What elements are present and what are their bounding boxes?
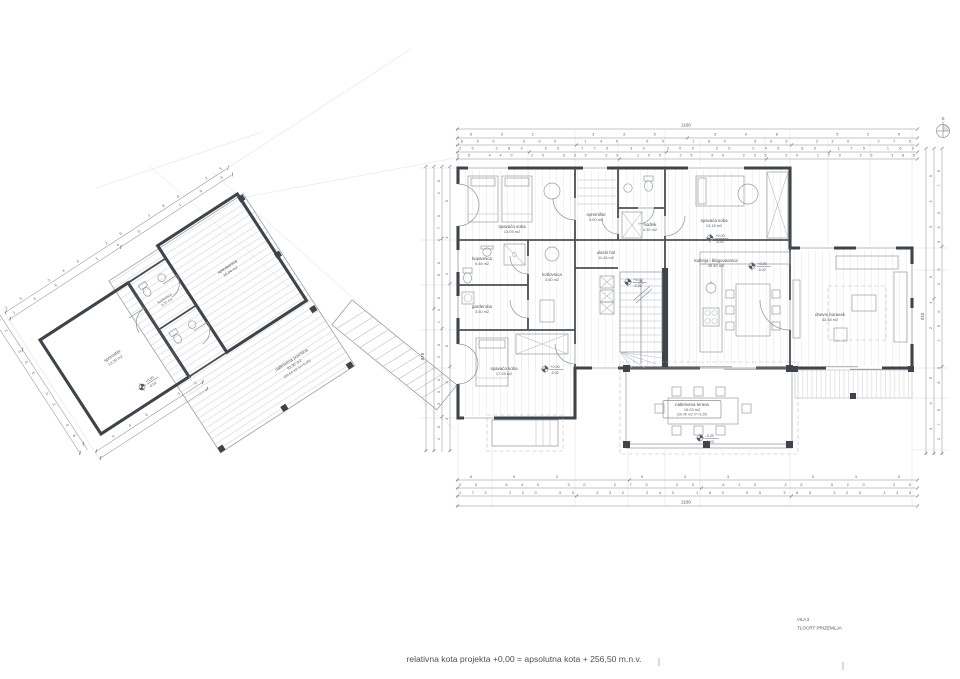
svg-text:-0,02: -0,02 bbox=[634, 284, 642, 288]
svg-text:-0,02: -0,02 bbox=[716, 240, 724, 244]
drawing-sheet: 155 140 195 25 240 20 180 25 90 20 330 2… bbox=[0, 0, 960, 679]
room-label: spremište13.20 m2 bbox=[103, 348, 125, 367]
svg-text:ulazni hol11.46 m2: ulazni hol11.46 m2 bbox=[597, 250, 616, 260]
svg-text:-0,20: -0,20 bbox=[706, 434, 714, 438]
dim-row: 650 300 140 60 160 345 230 275 bbox=[461, 140, 911, 144]
svg-text:-0,02: -0,02 bbox=[758, 268, 766, 272]
footer: relativna kota projekta +0,00 = apsolutn… bbox=[406, 654, 843, 670]
north-symbol: S bbox=[937, 116, 950, 138]
floor-plan-canvas: 155 140 195 25 240 20 180 25 90 20 330 2… bbox=[0, 0, 960, 679]
deck bbox=[792, 366, 914, 399]
room-label: ulazni hol11.46 m2 bbox=[597, 250, 616, 260]
svg-text:+0,00: +0,00 bbox=[758, 262, 767, 266]
svg-text:+0,00: +0,00 bbox=[551, 365, 560, 369]
svg-text:-0,22: -0,22 bbox=[706, 440, 714, 444]
dim-total-right: 910 bbox=[920, 312, 925, 320]
dim-total-left: 875 bbox=[420, 352, 425, 360]
dim-row: 25 440 20 330 20 100 25 90 235 20 170 25… bbox=[457, 154, 915, 158]
drawing-title: TLOCRT PRIZEMLJA bbox=[797, 626, 843, 631]
dim-total-top: 2160 bbox=[681, 123, 691, 128]
dim-row: 170 120 90 330 240 160 95 385 200 135 bbox=[459, 491, 911, 495]
dim-row: 692 335 608 525 bbox=[470, 133, 900, 137]
svg-text:hodnik4.20 m2: hodnik4.20 m2 bbox=[643, 222, 657, 232]
svg-text:-0,02: -0,02 bbox=[551, 371, 559, 375]
dim-col: 25 300 20 140 90 275 25 bbox=[437, 180, 441, 440]
dimensions-bottom: 692 933 535 25 640 30 270 20 610 25 520 … bbox=[456, 475, 919, 508]
dimensions-top: 2160 692 335 608 525 650 300 140 60 160 … bbox=[456, 123, 919, 161]
dimensions-right: 910 275 60 150 20 330 75 335 240 335 bbox=[920, 147, 944, 455]
north-label: S bbox=[941, 116, 944, 121]
svg-text:+0,00: +0,00 bbox=[634, 278, 643, 282]
svg-text:spremište13.20 m2: spremište13.20 m2 bbox=[103, 348, 125, 367]
dim-row: 25 640 30 270 20 610 25 520 20 bbox=[459, 483, 911, 487]
level-marker: -0,20 -0,22 bbox=[696, 434, 719, 444]
level-marker: +0,00 -0,02 bbox=[136, 373, 161, 394]
footer-note: relativna kota projekta +0,00 = apsolutn… bbox=[406, 654, 641, 664]
title-block: VILA 2 TLOCRT PRIZEMLJA bbox=[797, 617, 843, 631]
porch bbox=[487, 415, 563, 451]
dim-row: 25 280 90 775 30 300 20 245 60 175 160 bbox=[459, 147, 914, 151]
dim-col: 275 60 150 20 330 75 bbox=[937, 170, 941, 440]
dim-col: 335 240 335 bbox=[929, 175, 933, 430]
dim-col: 430 445 bbox=[445, 200, 449, 420]
dim-row: 692 933 535 bbox=[470, 475, 900, 479]
dim-total-bottom: 2160 bbox=[681, 500, 691, 505]
room-label: hodnik4.20 m2 bbox=[643, 222, 657, 232]
sheet-title: VILA 2 bbox=[797, 617, 810, 622]
svg-text:+0,00: +0,00 bbox=[716, 234, 725, 238]
